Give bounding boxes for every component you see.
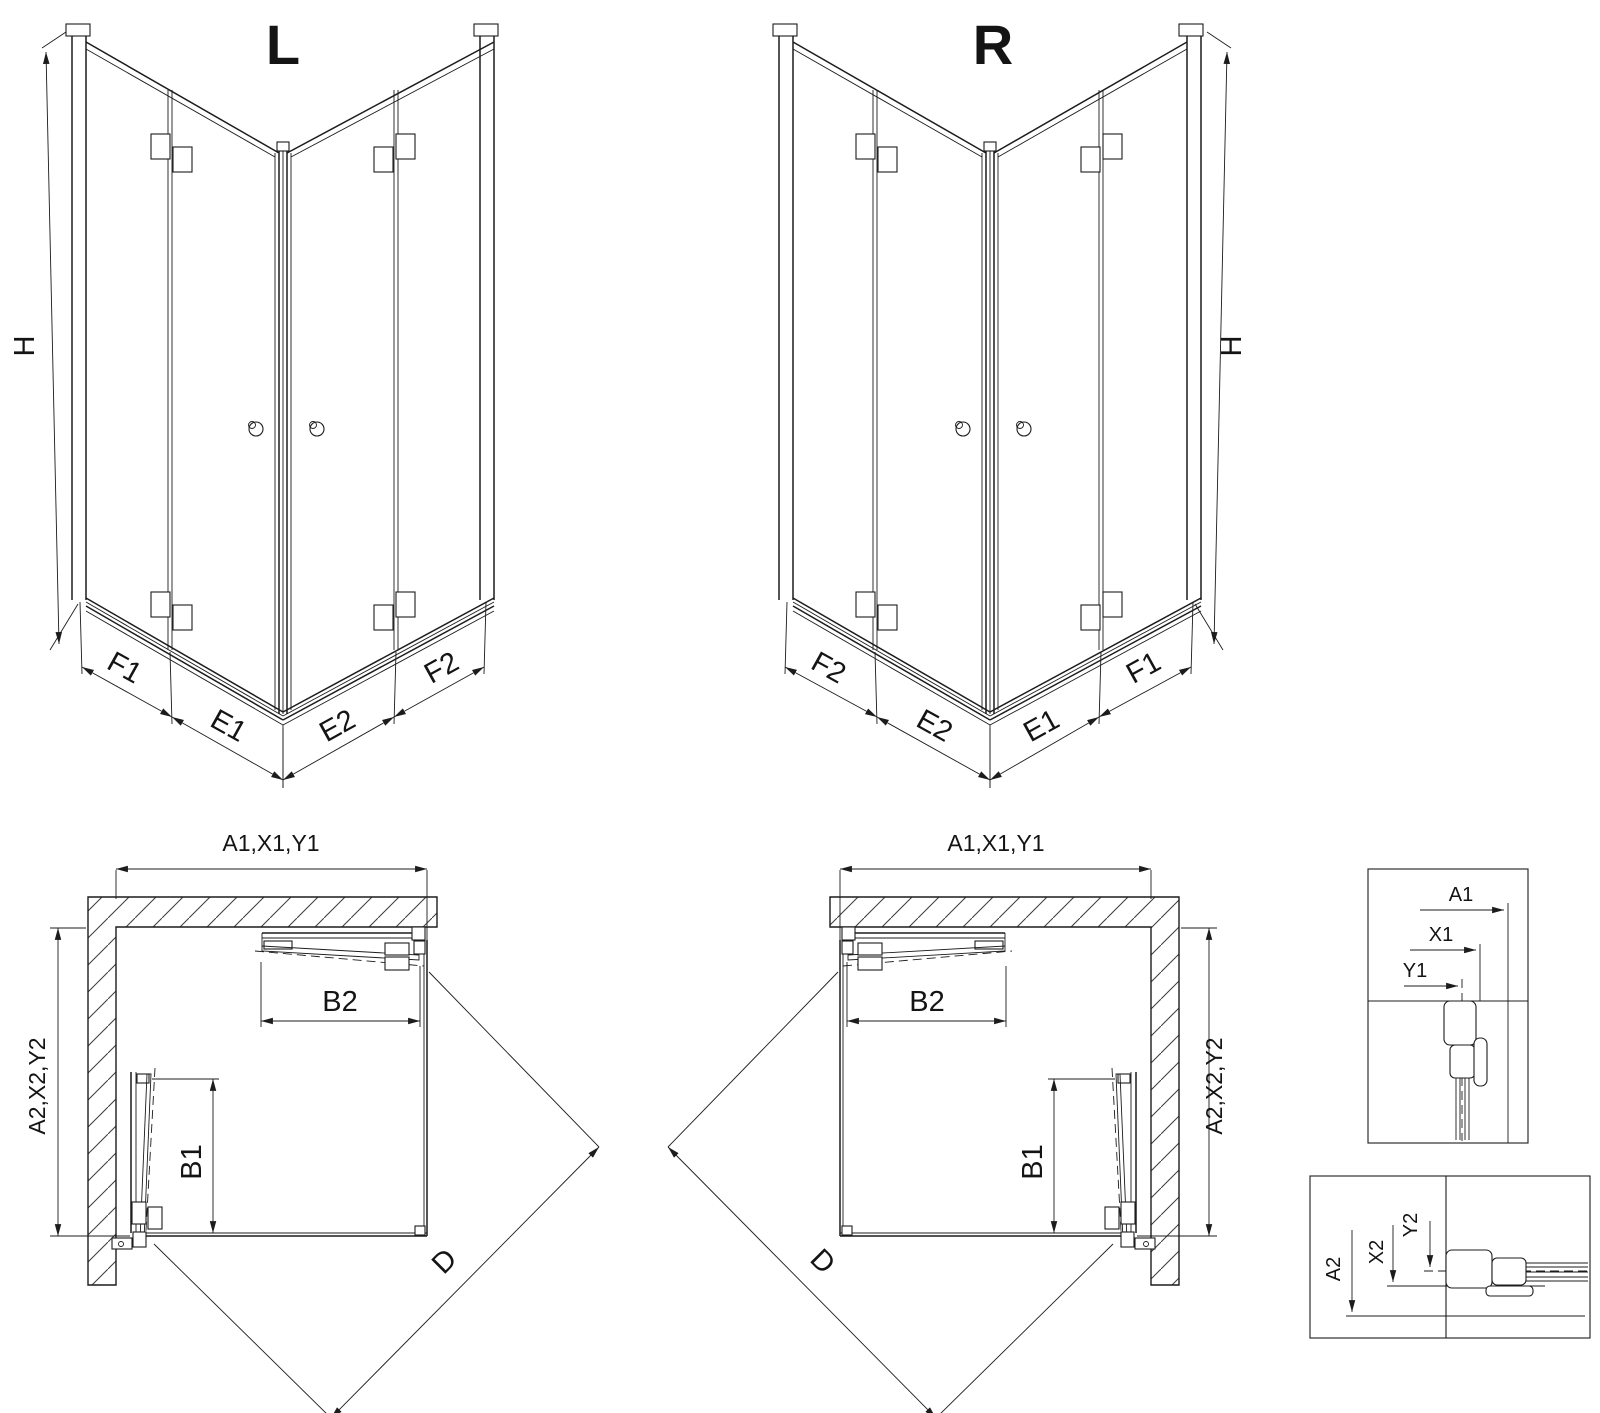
- left-plan-view: A1,X1,Y1 A2,X2,Y2 B2 B1 D: [24, 830, 599, 1413]
- door-knob-icon: [310, 422, 325, 437]
- shower-enclosure-technical-diagram: L: [0, 0, 1600, 1413]
- wall-profile-section: [1446, 1250, 1588, 1296]
- dim-label-e1: E1: [1018, 704, 1065, 749]
- dim-label-a1x1y1: A1,X1,Y1: [222, 830, 319, 856]
- wall-profile-left: [773, 24, 797, 600]
- dimension-d: D: [668, 972, 1113, 1413]
- detail-box-bottom: A2 X2 Y2: [1310, 1176, 1590, 1338]
- dim-label-d: D: [426, 1243, 463, 1280]
- dimension-d: D: [154, 972, 599, 1413]
- technical-drawing-page: L: [0, 0, 1600, 1413]
- dim-label-e2: E2: [911, 704, 958, 749]
- top-bifold-door: [255, 933, 424, 970]
- dim-label-x2: X2: [1366, 1240, 1388, 1264]
- dim-label-a1: A1: [1449, 884, 1473, 906]
- dimension-b1: B1: [1017, 1079, 1115, 1233]
- variant-label-left: L: [266, 13, 300, 76]
- top-bifold-door: [843, 933, 1012, 970]
- door-knob-icon: [956, 422, 971, 437]
- dim-label-a1x1y1: A1,X1,Y1: [947, 830, 1044, 856]
- dim-label-x1: X1: [1429, 924, 1453, 946]
- dim-label-h: H: [9, 336, 41, 357]
- detail-box-top: A1 X1 Y1: [1368, 869, 1528, 1143]
- wall-profile-right: [1179, 24, 1203, 600]
- dim-label-b1: B1: [1017, 1144, 1049, 1179]
- hinge-icon: [1081, 134, 1122, 172]
- dim-label-y2: Y2: [1400, 1213, 1422, 1237]
- dim-label-f2: F2: [419, 646, 464, 690]
- variant-label-right: R: [973, 13, 1013, 76]
- side-bifold-door: [1105, 1068, 1155, 1249]
- dim-label-h: H: [1216, 336, 1248, 357]
- side-bifold-door: [112, 1068, 162, 1249]
- dim-label-d: D: [804, 1243, 841, 1280]
- wall-profile-right: [474, 24, 498, 600]
- hinge-icon: [151, 592, 192, 630]
- dimension-h-right: H: [1195, 32, 1248, 650]
- door-knob-icon: [1017, 422, 1032, 437]
- wall-profile-left: [66, 24, 90, 600]
- dim-label-b1: B1: [176, 1144, 208, 1179]
- hinge-icon: [856, 592, 897, 630]
- right-plan-view: A1,X1,Y1 A2,X2,Y2 B2 B1 D: [668, 830, 1227, 1413]
- dim-label-y1: Y1: [1403, 960, 1427, 982]
- hinge-icon: [374, 592, 415, 630]
- dim-label-f1: F1: [102, 646, 147, 690]
- dim-label-f2: F2: [806, 646, 851, 690]
- hinge-icon: [856, 134, 897, 172]
- wall-profile-section: [1444, 1001, 1487, 1140]
- dim-label-a2: A2: [1323, 1257, 1345, 1281]
- dim-label-a2x2y2: A2,X2,Y2: [1201, 1037, 1227, 1134]
- dim-label-e1: E1: [205, 704, 252, 749]
- dimension-h-left: H: [9, 32, 78, 650]
- dim-label-e2: E2: [314, 704, 361, 749]
- hinge-icon: [1081, 592, 1122, 630]
- corner-post: [275, 142, 291, 714]
- corner-post: [982, 142, 998, 714]
- right-3d-view: R: [773, 13, 1248, 788]
- dimension-b2: B2: [847, 962, 1006, 1027]
- dim-label-b2: B2: [909, 986, 944, 1018]
- hinge-icon: [374, 134, 415, 172]
- hinge-icon: [151, 134, 192, 172]
- dim-label-b2: B2: [322, 986, 357, 1018]
- dimension-b2: B2: [261, 962, 420, 1027]
- left-3d-view: L: [9, 13, 498, 788]
- door-knob-icon: [249, 422, 264, 437]
- dim-label-a2x2y2: A2,X2,Y2: [24, 1037, 50, 1134]
